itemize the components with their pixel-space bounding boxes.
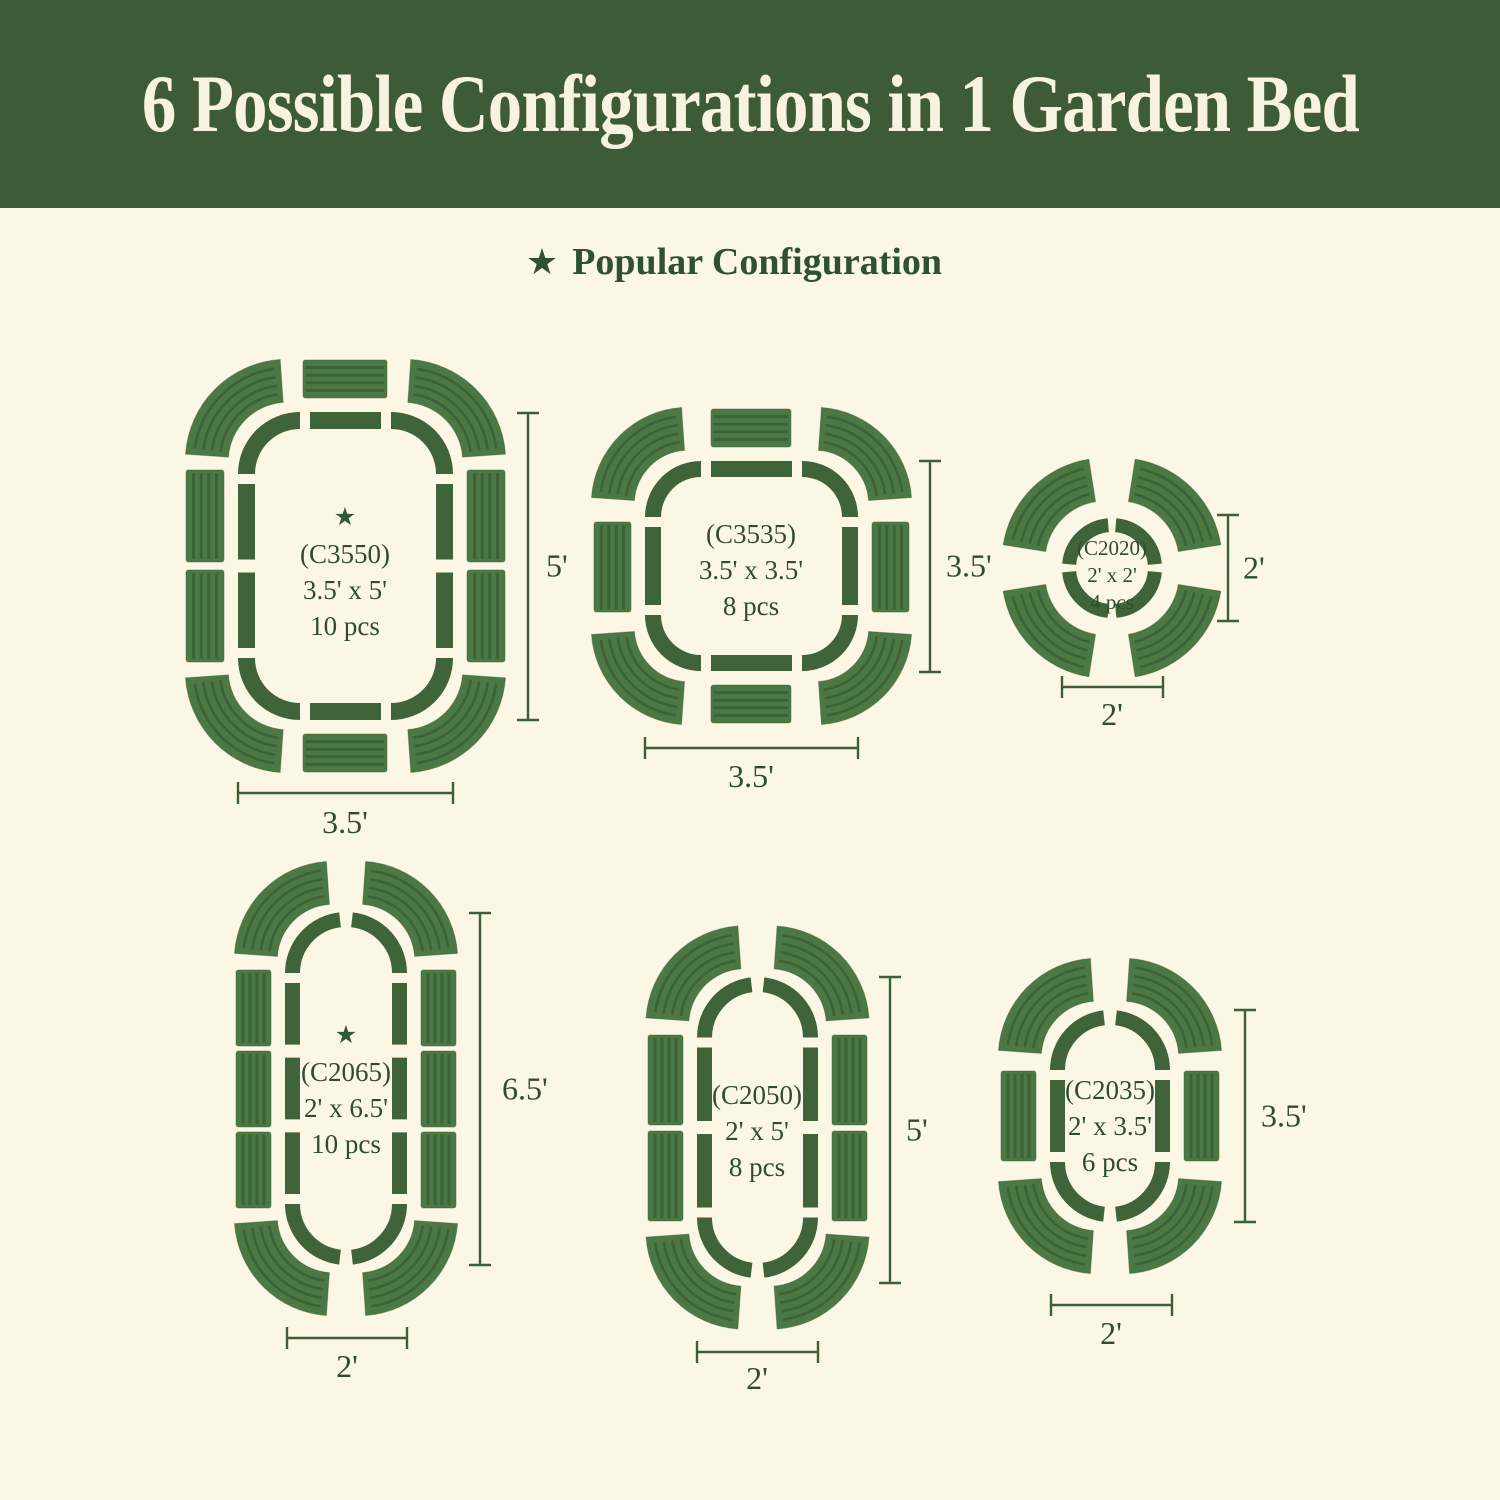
config-pieces: 4 pcs: [1090, 589, 1134, 614]
popular-star-icon: ★: [335, 1023, 357, 1048]
width-dimension-label: 3.5': [322, 804, 368, 841]
config-label-c2050: (C2050) 2' x 5' 8 pcs: [712, 1080, 802, 1184]
config-pieces: 8 pcs: [723, 591, 779, 623]
height-dimension-label: 2': [1243, 550, 1265, 587]
width-dimension-label: 2': [336, 1348, 358, 1385]
height-dimension-label: 3.5': [946, 548, 992, 585]
config-size: 2' x 2': [1087, 563, 1137, 588]
config-code: (C2050): [712, 1080, 802, 1112]
config-size: 2' x 5': [725, 1116, 789, 1148]
config-size: 3.5' x 3.5': [699, 555, 803, 587]
config-label-c3550: ★ (C3550) 3.5' x 5' 10 pcs: [300, 505, 390, 643]
config-code: (C2035): [1065, 1075, 1155, 1107]
config-pieces: 6 pcs: [1082, 1147, 1138, 1179]
config-code: (C2020): [1077, 536, 1147, 561]
height-dimension-label: 5': [906, 1112, 928, 1149]
popular-star-icon: ★: [334, 505, 356, 530]
config-label-c2020: (C2020) 2' x 2' 4 pcs: [1077, 536, 1147, 614]
height-dimension-label: 3.5': [1261, 1098, 1307, 1135]
config-label-c2065: ★ (C2065) 2' x 6.5' 10 pcs: [301, 1023, 391, 1161]
height-dimension-label: 5': [546, 548, 568, 585]
config-size: 2' x 6.5': [304, 1093, 388, 1125]
width-dimension-label: 2': [1101, 696, 1123, 733]
config-label-c2035: (C2035) 2' x 3.5' 6 pcs: [1065, 1075, 1155, 1179]
config-size: 3.5' x 5': [303, 575, 387, 607]
width-dimension-label: 3.5': [728, 758, 774, 795]
width-dimension-label: 2': [746, 1360, 768, 1397]
config-size: 2' x 3.5': [1068, 1111, 1152, 1143]
config-code: (C3535): [706, 519, 796, 551]
config-pieces: 10 pcs: [311, 1129, 381, 1161]
config-pieces: 8 pcs: [729, 1152, 785, 1184]
config-code: (C3550): [300, 539, 390, 571]
garden-bed-configurations-diagram: [0, 0, 1500, 1500]
config-code: (C2065): [301, 1057, 391, 1089]
config-pieces: 10 pcs: [310, 611, 380, 643]
config-label-c3535: (C3535) 3.5' x 3.5' 8 pcs: [699, 519, 803, 623]
width-dimension-label: 2': [1100, 1315, 1122, 1352]
height-dimension-label: 6.5': [502, 1071, 548, 1108]
